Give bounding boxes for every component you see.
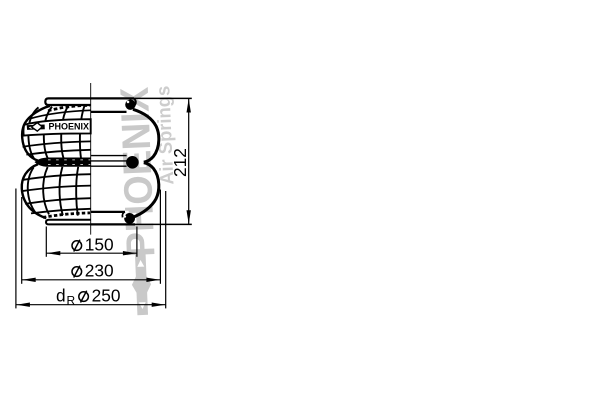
svg-text:d: d xyxy=(56,285,66,305)
svg-text:R: R xyxy=(67,293,76,307)
svg-text:212: 212 xyxy=(170,148,190,177)
svg-text:150: 150 xyxy=(85,234,114,254)
svg-text:230: 230 xyxy=(85,260,114,280)
svg-text:250: 250 xyxy=(92,285,121,305)
svg-text:PHOENIX: PHOENIX xyxy=(49,122,90,133)
